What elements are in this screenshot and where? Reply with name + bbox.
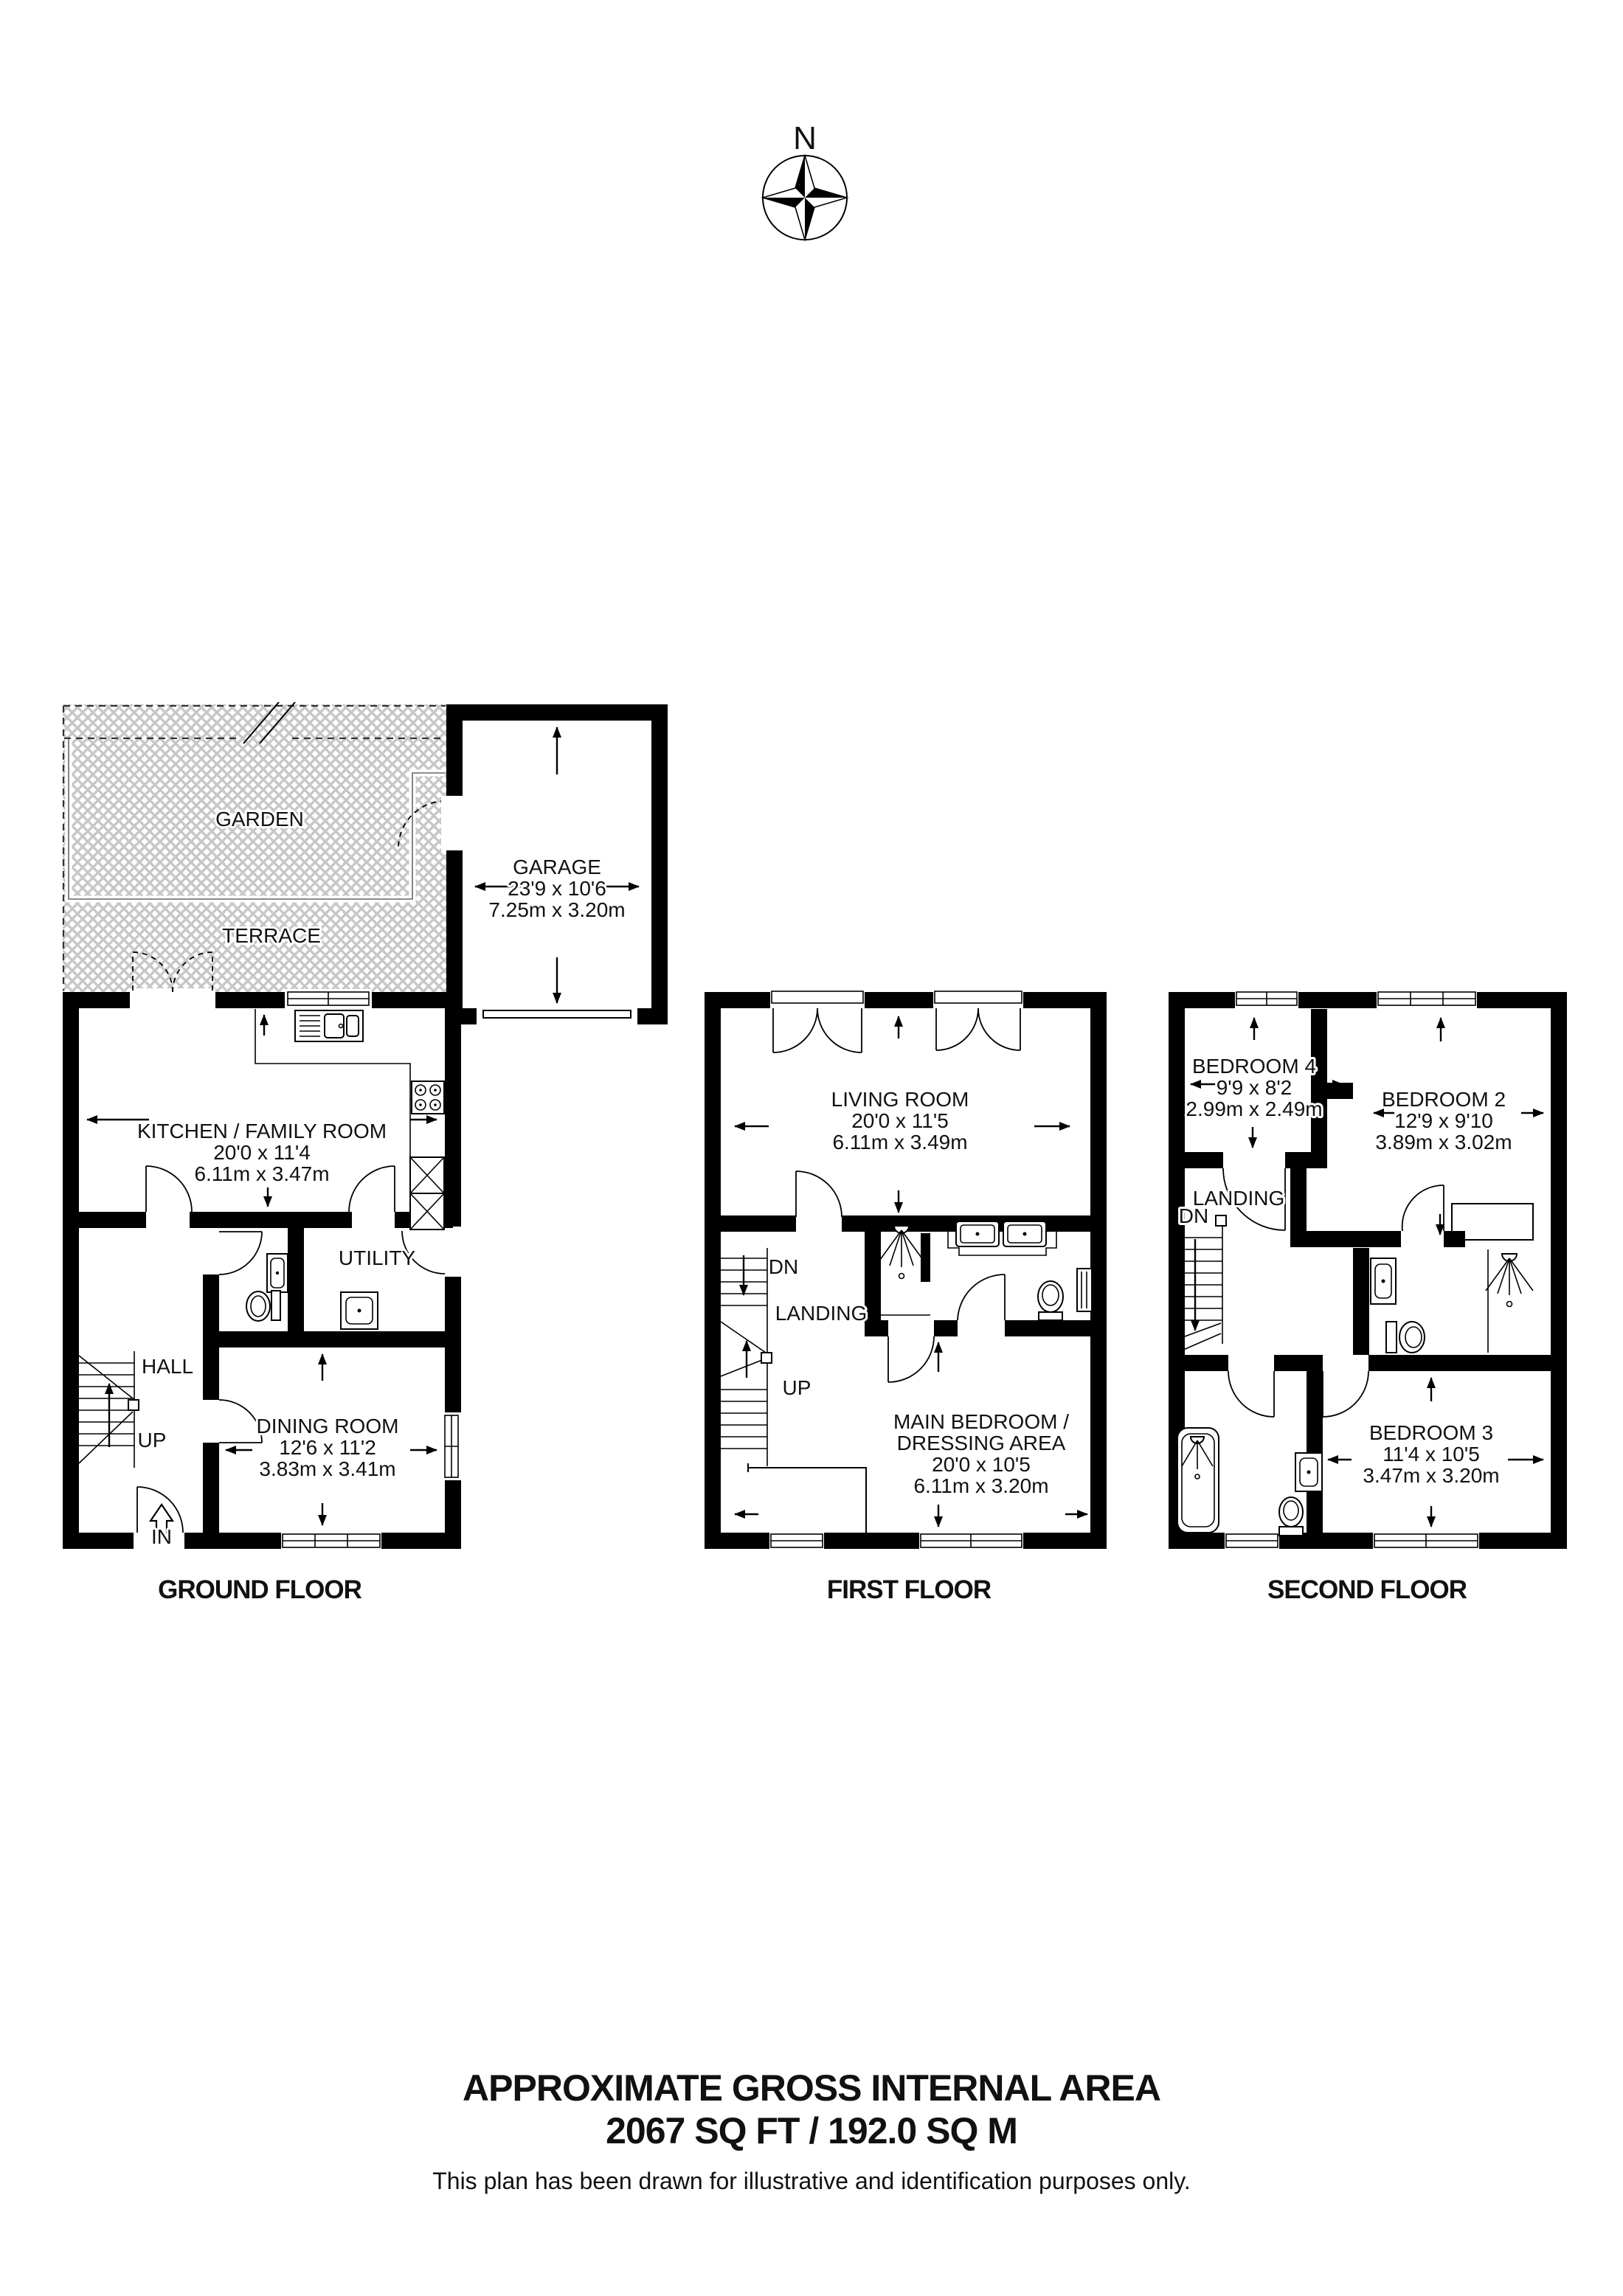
second-floor-plan: BEDROOM 49'9 x 8'22.99m x 2.49mBEDROOM 2… bbox=[1169, 987, 1567, 1604]
floorplan-page: N bbox=[0, 0, 1623, 2296]
ground-floor-plan: GARDENTERRACEGARAGE23'9 x 10'67.25m x 3.… bbox=[63, 702, 660, 1604]
garden-area bbox=[63, 702, 446, 992]
hob-icon bbox=[412, 1081, 444, 1114]
room-label-dn: DN bbox=[1179, 1204, 1208, 1227]
shower-room-toilet-icon bbox=[1386, 1322, 1425, 1353]
footer-text: APPROXIMATE GROSS INTERNAL AREA 2067 SQ … bbox=[432, 2067, 1191, 2194]
room-label-bedroom-2: BEDROOM 212'9 x 9'103.89m x 3.02m bbox=[1375, 1088, 1512, 1154]
garden-hatch bbox=[63, 704, 446, 992]
room-label-up: UP bbox=[138, 1429, 167, 1452]
second-floor-title: SECOND FLOOR bbox=[1267, 1575, 1467, 1604]
room-label-living-room: LIVING ROOM20'0 x 11'56.11m x 3.49m bbox=[831, 1088, 969, 1154]
wc-toilet-icon bbox=[246, 1291, 280, 1321]
room-label-bedroom-3: BEDROOM 311'4 x 10'53.47m x 3.20m bbox=[1363, 1421, 1499, 1487]
kitchen-sink-icon bbox=[295, 1010, 363, 1041]
compass-north-label: N bbox=[793, 120, 817, 156]
gross-internal-area-heading: APPROXIMATE GROSS INTERNAL AREA bbox=[463, 2067, 1160, 2109]
bath-icon bbox=[1177, 1428, 1219, 1533]
floorplan-image: N bbox=[0, 0, 1623, 2296]
bathroom-toilet-icon bbox=[1279, 1497, 1303, 1536]
room-label-up: UP bbox=[783, 1376, 811, 1399]
kitchen-units-icon bbox=[410, 1157, 444, 1229]
utility-door-opening bbox=[443, 1227, 463, 1277]
ground-floor-title: GROUND FLOOR bbox=[158, 1575, 361, 1604]
room-label-garden: GARDEN bbox=[215, 808, 304, 830]
radiator-icon bbox=[1077, 1269, 1092, 1311]
room-label-dn: DN bbox=[769, 1255, 798, 1278]
first-floor-title: FIRST FLOOR bbox=[827, 1575, 992, 1604]
room-label-landing: LANDING bbox=[775, 1302, 867, 1325]
gross-internal-area-value: 2067 SQ FT / 192.0 SQ M bbox=[606, 2110, 1017, 2151]
room-label-hall: HALL bbox=[142, 1355, 193, 1378]
garage-side-door-opening bbox=[441, 796, 465, 850]
disclaimer-text: This plan has been drawn for illustrativ… bbox=[432, 2168, 1191, 2194]
room-label-main-bedroom: MAIN BEDROOM /DRESSING AREA20'0 x 10'56.… bbox=[893, 1410, 1069, 1497]
garage-door-icon bbox=[483, 1010, 631, 1018]
ensuite-toilet-icon bbox=[1038, 1281, 1063, 1320]
compass-rose: N bbox=[763, 120, 847, 240]
utility-sink-icon bbox=[341, 1292, 378, 1329]
room-label-terrace: TERRACE bbox=[222, 924, 321, 947]
bathroom-sink-icon bbox=[1295, 1453, 1322, 1491]
room-label-utility: UTILITY bbox=[339, 1246, 416, 1269]
wc-sink-icon bbox=[267, 1254, 288, 1292]
room-label-in: IN bbox=[151, 1525, 172, 1548]
first-floor-plan: LIVING ROOM20'0 x 11'56.11m x 3.49mDNLAN… bbox=[713, 987, 1098, 1604]
shower-room-sink-icon bbox=[1371, 1258, 1396, 1304]
